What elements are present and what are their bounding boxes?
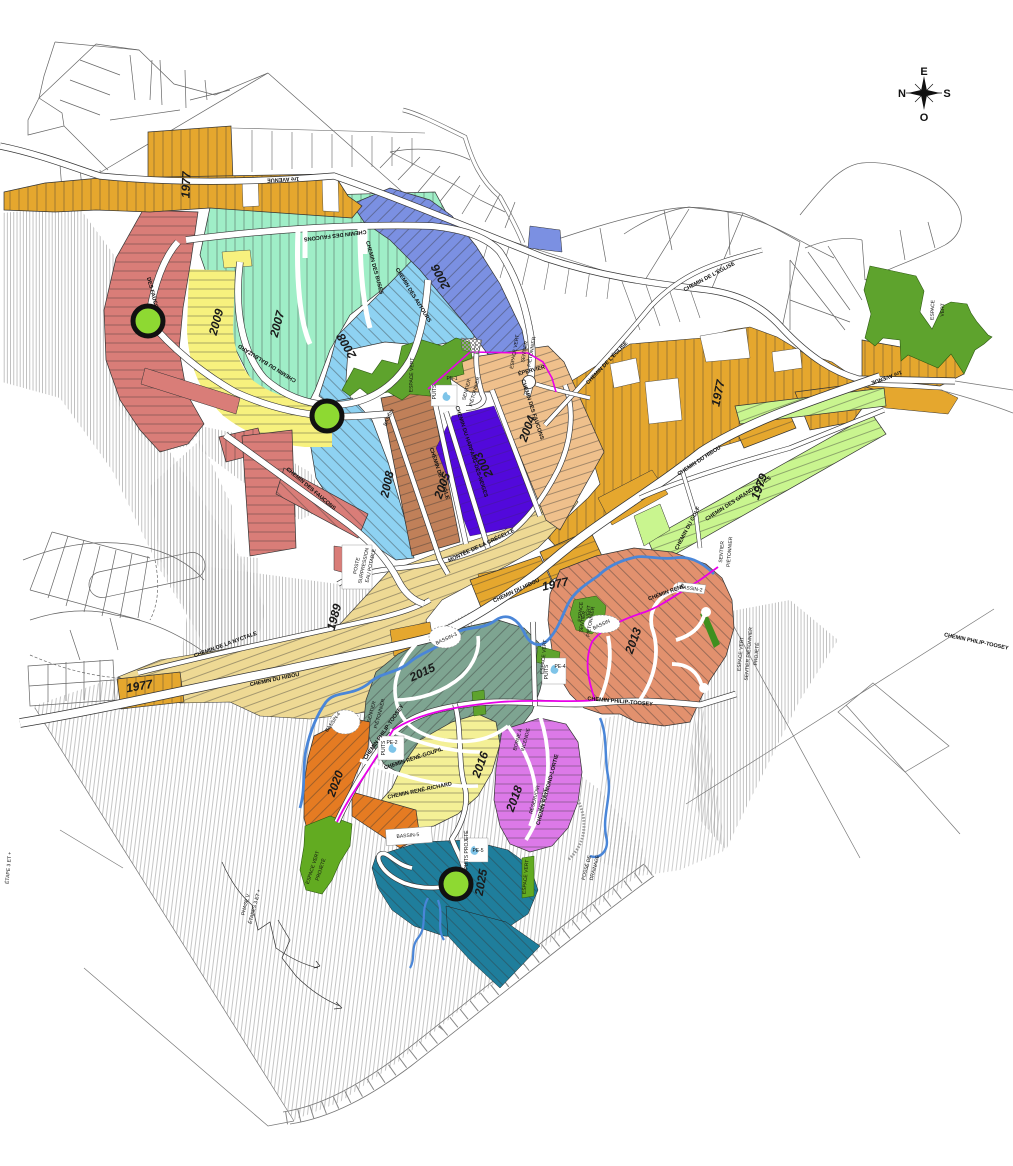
svg-text:S: S — [943, 88, 950, 100]
svg-text:PE-1: PE-1 — [446, 376, 457, 382]
svg-text:PE-4: PE-4 — [554, 664, 565, 670]
svg-text:PUITS PROJETÉ: PUITS PROJETÉ — [463, 830, 470, 870]
svg-text:PE-2: PE-2 — [386, 740, 397, 746]
svg-text:1977: 1977 — [179, 170, 194, 198]
svg-text:PE-5: PE-5 — [472, 848, 483, 854]
svg-text:E: E — [920, 66, 927, 78]
svg-text:N: N — [898, 88, 906, 100]
svg-text:VERT: VERT — [940, 303, 946, 316]
svg-text:PUITS: PUITS — [544, 664, 550, 679]
svg-text:ESPACE VERT: ESPACE VERT — [408, 358, 415, 393]
svg-text:PUITS: PUITS — [432, 384, 438, 399]
svg-text:O: O — [920, 112, 929, 124]
svg-text:ESPACE: ESPACE — [930, 299, 937, 320]
